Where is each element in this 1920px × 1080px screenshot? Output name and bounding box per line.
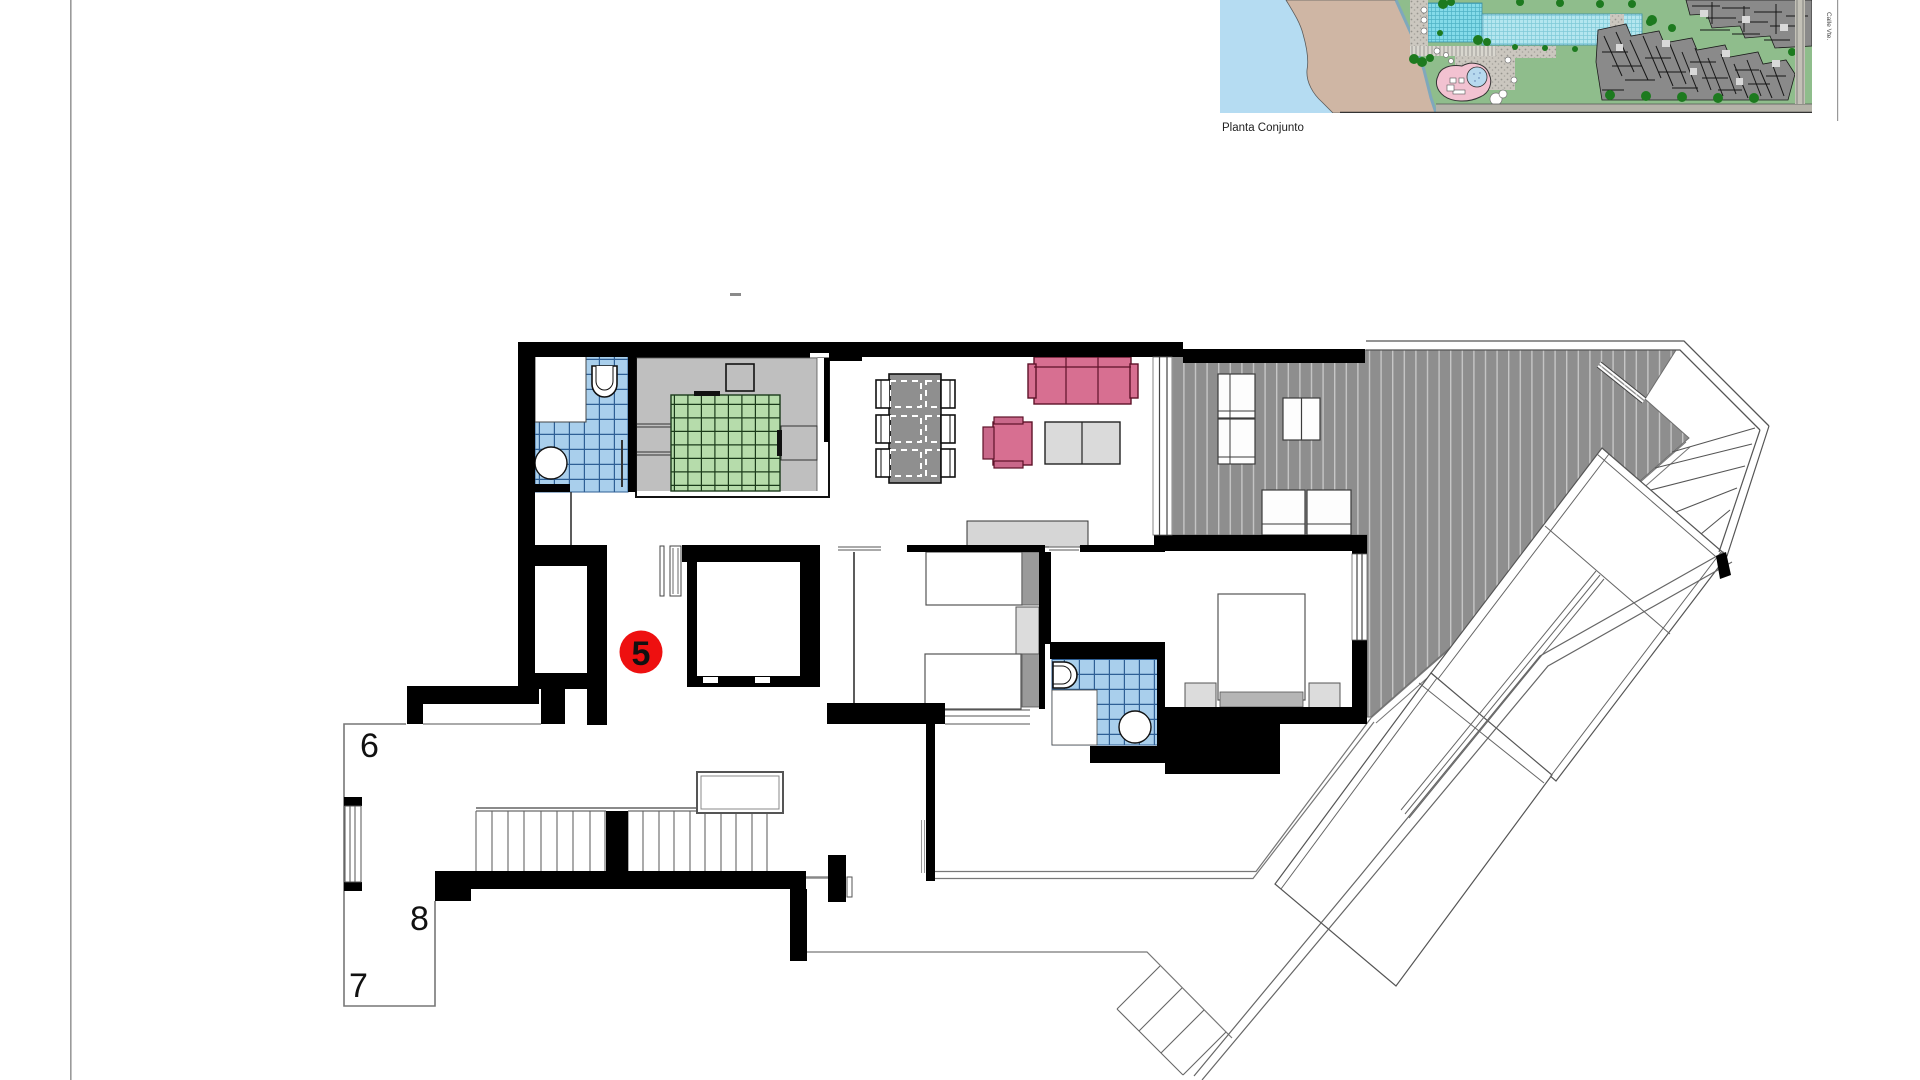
- svg-text:6: 6: [360, 727, 379, 765]
- svg-text:5: 5: [632, 635, 651, 673]
- svg-text:Calle Vte.: Calle Vte.: [1825, 12, 1832, 40]
- svg-text:Planta Conjunto: Planta Conjunto: [1222, 122, 1304, 134]
- svg-text:7: 7: [349, 967, 368, 1005]
- svg-text:8: 8: [410, 900, 429, 938]
